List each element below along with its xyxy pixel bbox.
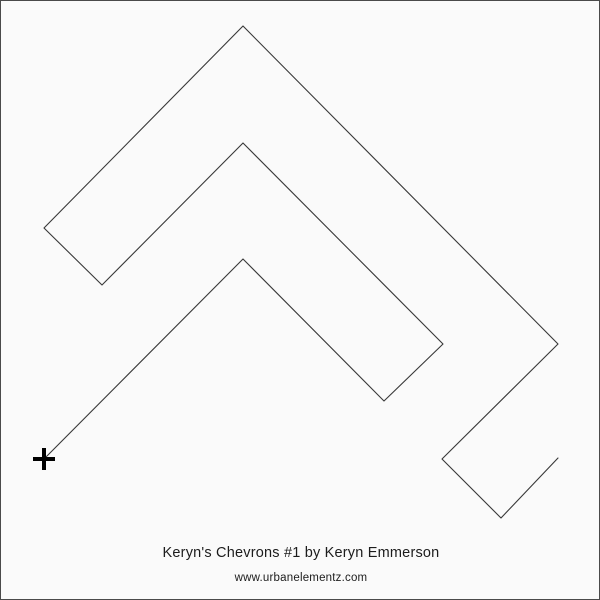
pattern-svg	[1, 1, 600, 600]
chevron-pattern-path	[44, 26, 558, 518]
website-url: www.urbanelementz.com	[1, 572, 600, 584]
pantograph-canvas: Keryn's Chevrons #1 by Keryn Emmerson ww…	[0, 0, 600, 600]
pattern-title: Keryn's Chevrons #1 by Keryn Emmerson	[1, 545, 600, 561]
